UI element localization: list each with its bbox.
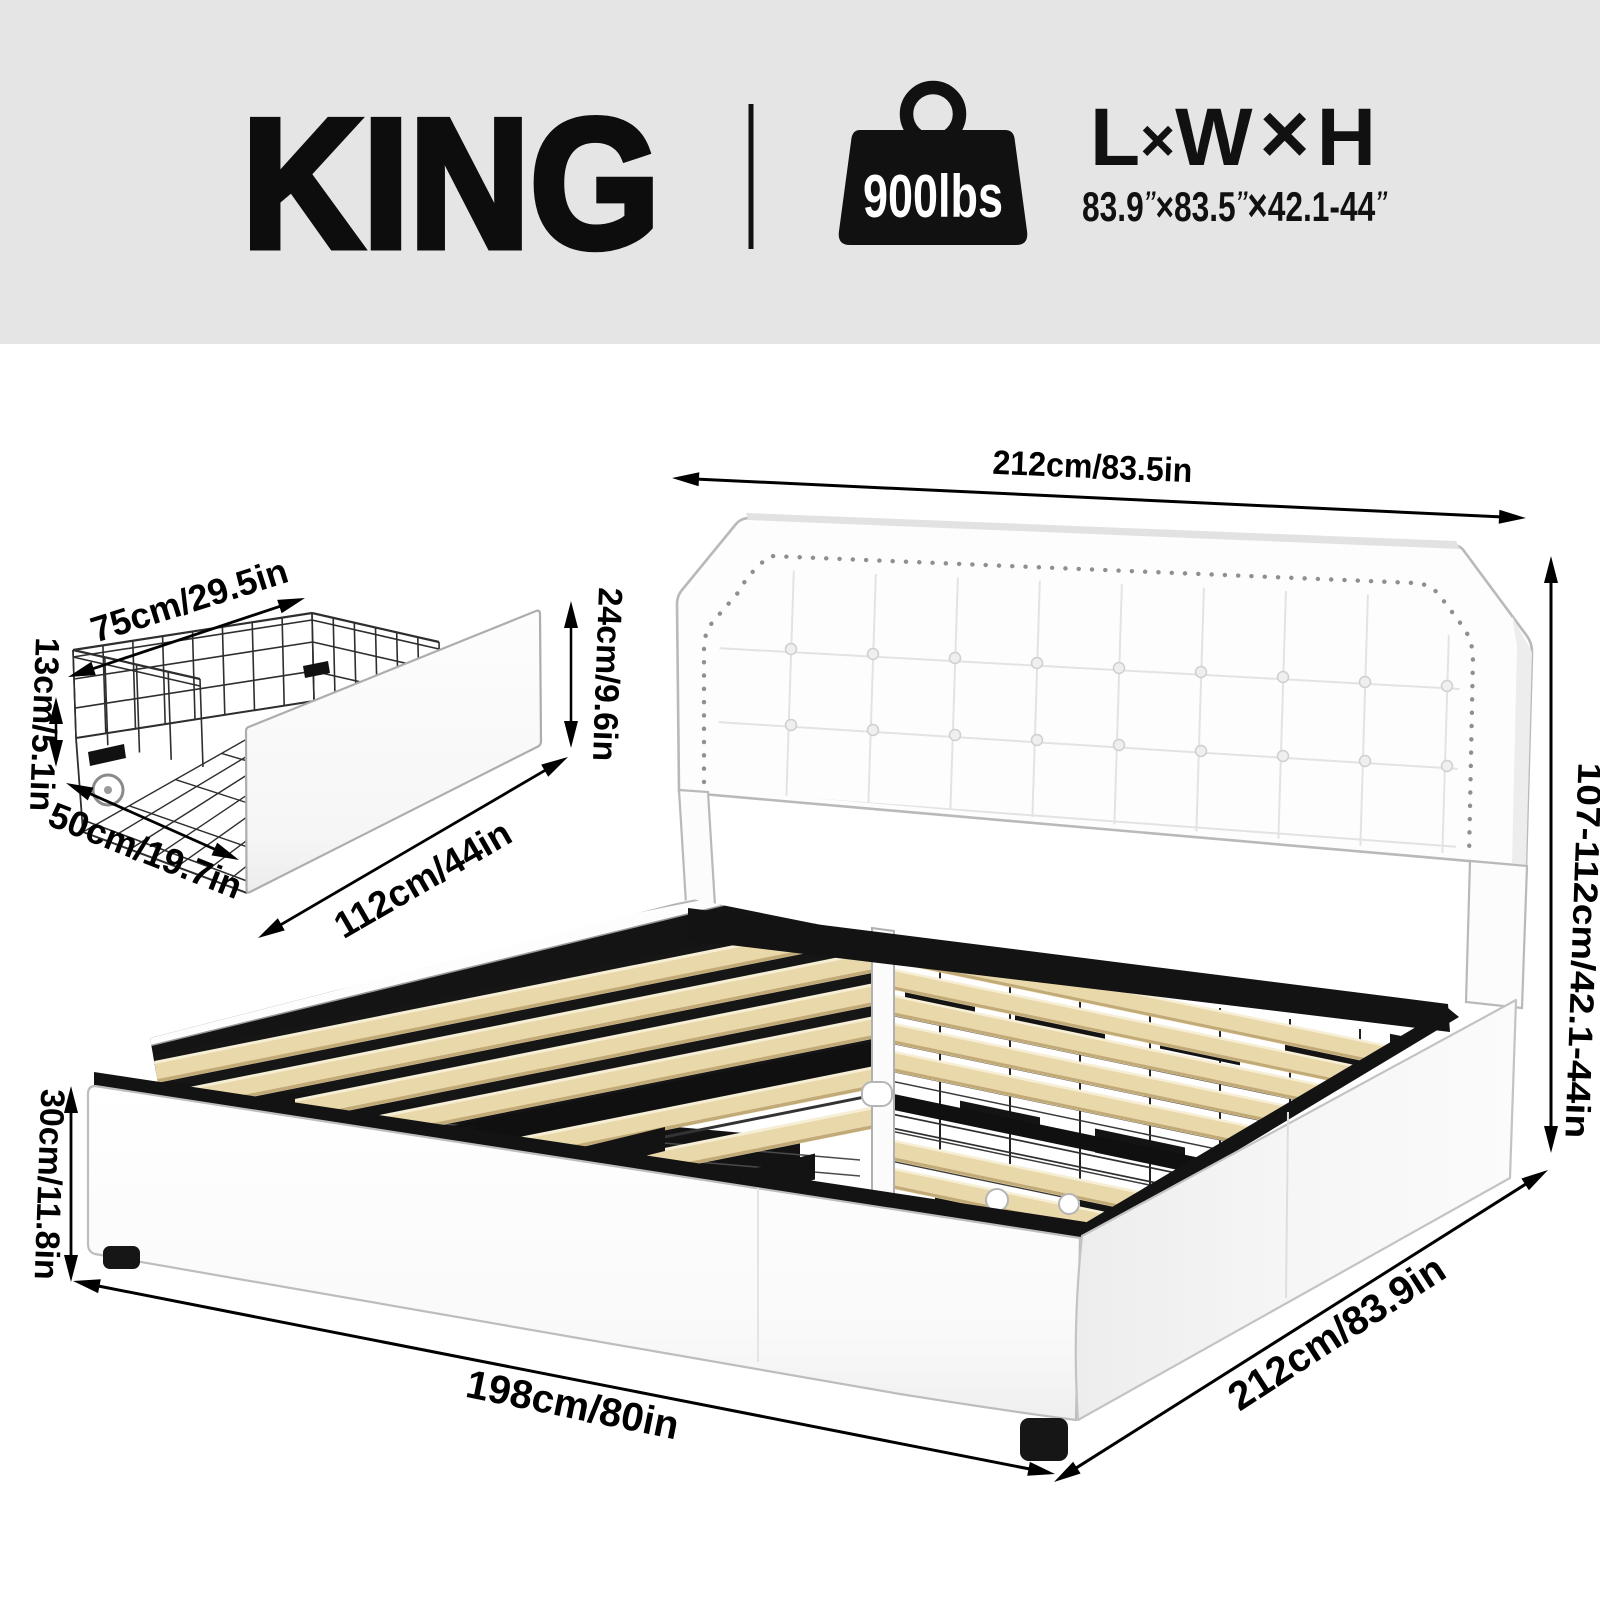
svg-text:900lbs: 900lbs <box>863 163 1003 230</box>
svg-text:30cm/11.8in: 30cm/11.8in <box>27 1088 72 1280</box>
svg-text:KING: KING <box>242 80 660 286</box>
svg-text:24cm/9.6in: 24cm/9.6in <box>585 587 629 762</box>
svg-text:13cm/5.1in: 13cm/5.1in <box>22 637 66 812</box>
svg-text:L×W×H: L×W×H <box>1090 86 1376 183</box>
svg-text:83.9’’×83.5’’×42.1-44’’: 83.9’’×83.5’’×42.1-44’’ <box>1082 179 1387 231</box>
